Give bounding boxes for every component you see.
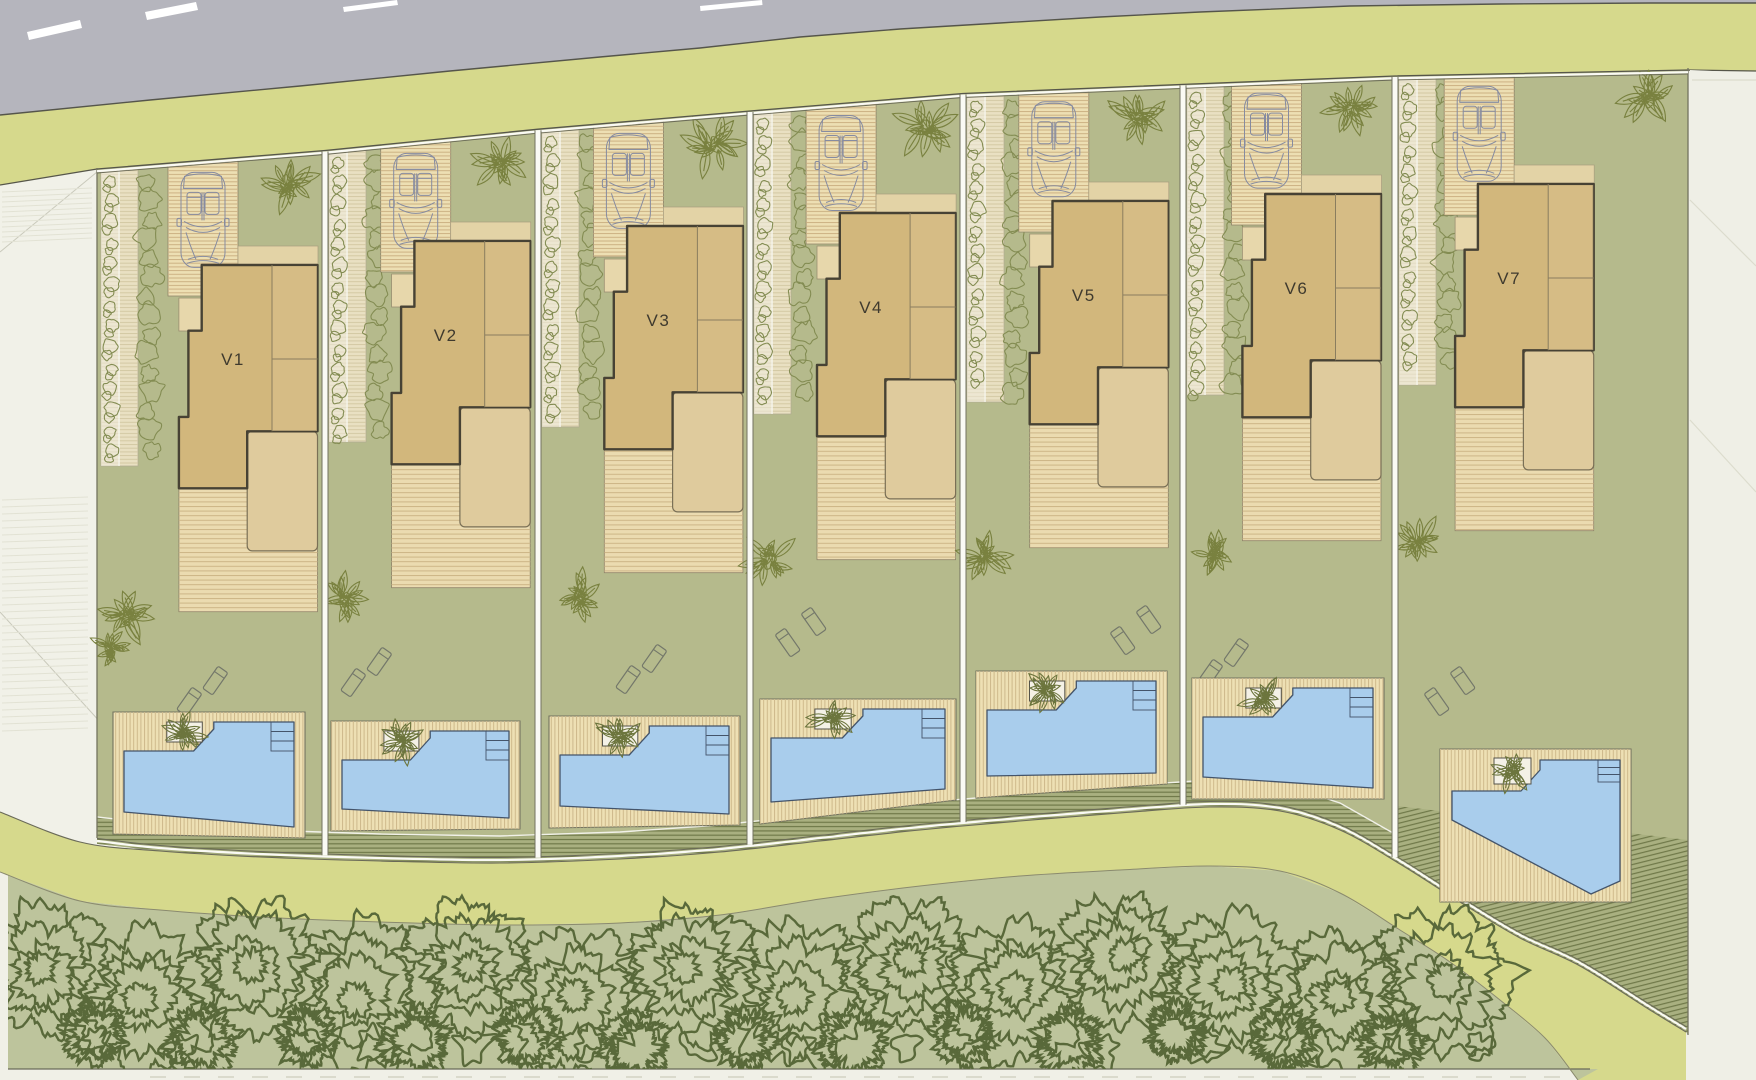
svg-text:V1: V1	[221, 350, 245, 369]
svg-text:V5: V5	[1072, 286, 1096, 305]
svg-text:V6: V6	[1285, 279, 1309, 298]
svg-text:V2: V2	[434, 326, 458, 345]
svg-text:V3: V3	[647, 311, 671, 330]
svg-text:V4: V4	[859, 298, 883, 317]
svg-text:V7: V7	[1497, 269, 1521, 288]
